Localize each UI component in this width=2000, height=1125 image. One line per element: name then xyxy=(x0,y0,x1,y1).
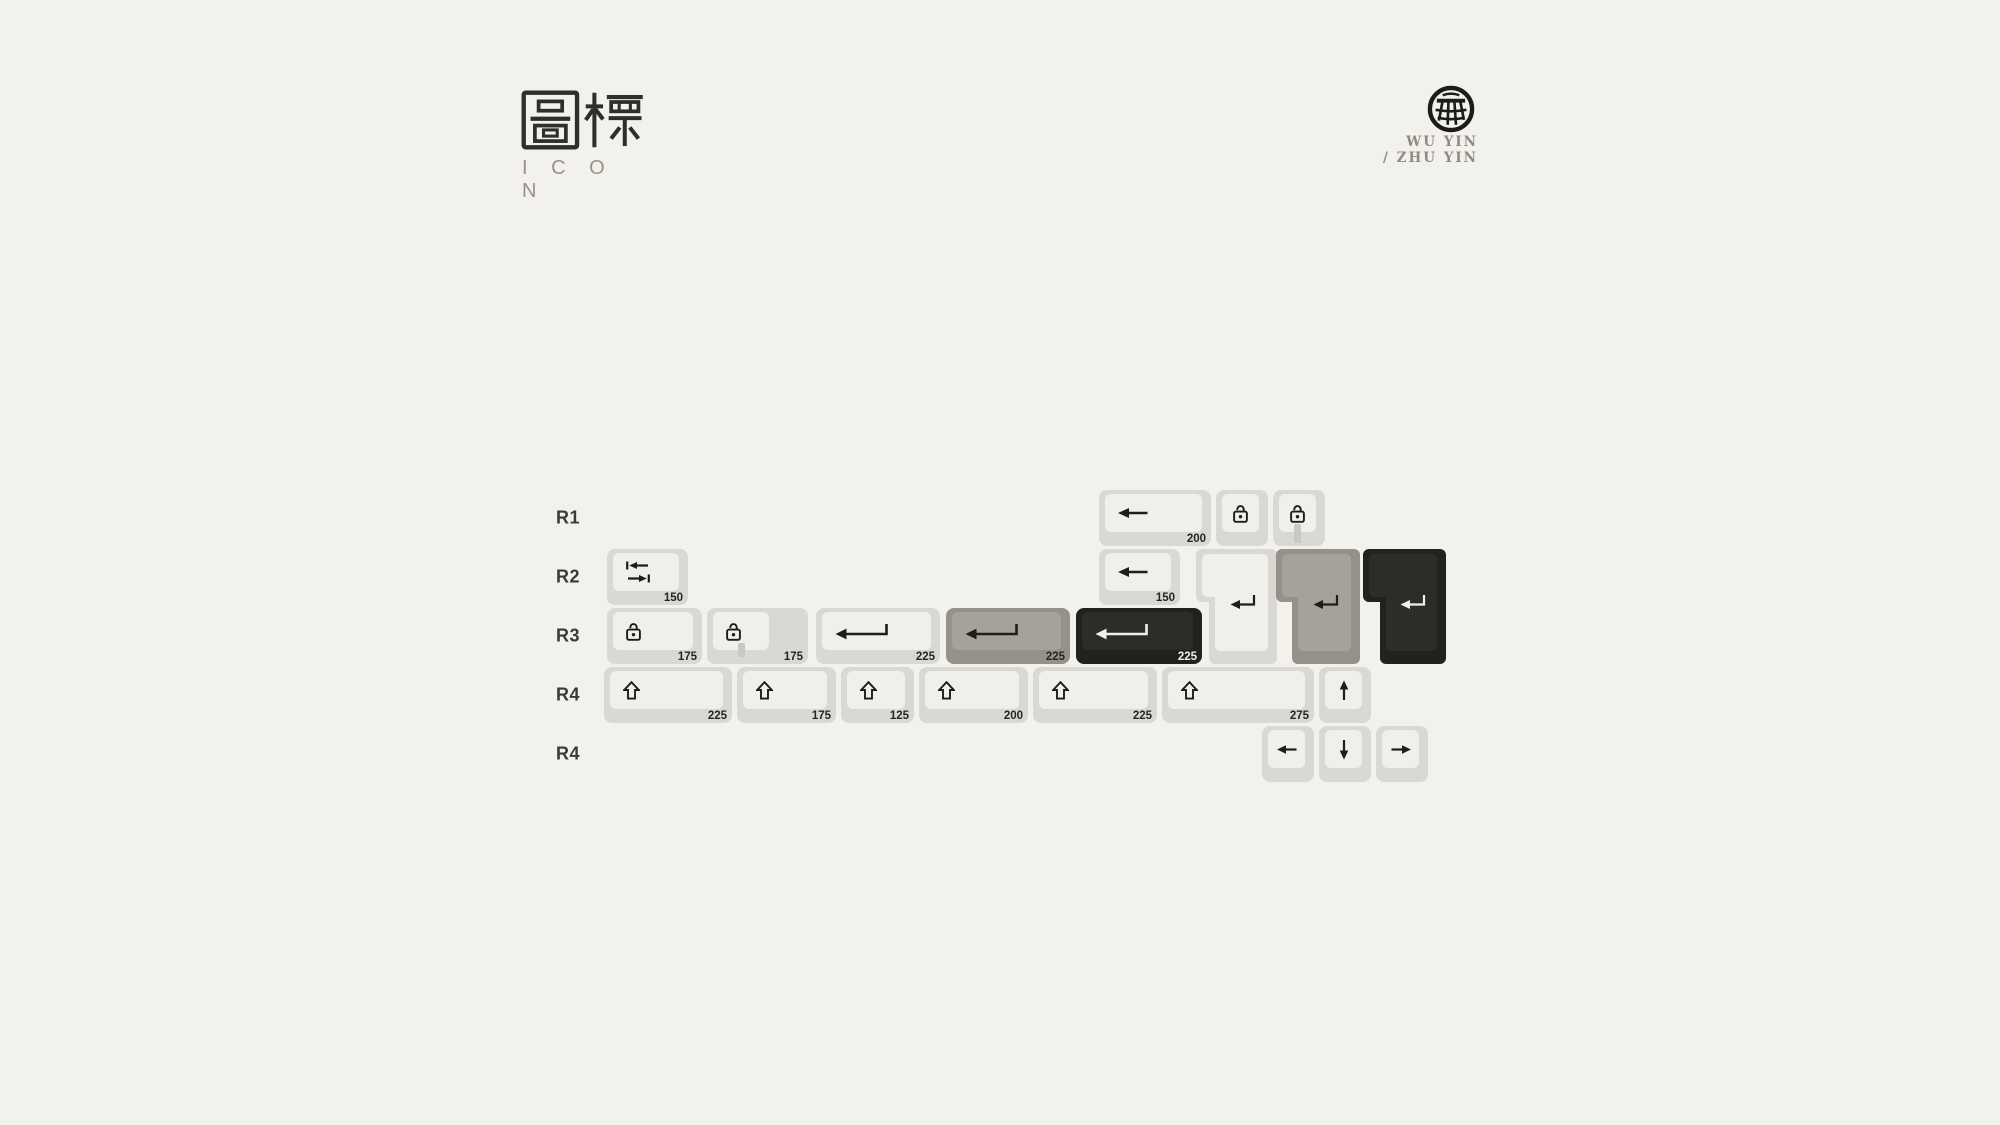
arrow-down-icon xyxy=(1338,739,1349,759)
keycap-size-label: 200 xyxy=(1187,533,1206,545)
keycap-size-label: 150 xyxy=(664,592,683,604)
return-long-icon xyxy=(965,621,1019,641)
keycap-size-label: 225 xyxy=(916,651,935,663)
keycap-top-surface xyxy=(613,612,693,650)
arrow-left-icon xyxy=(1118,507,1148,519)
return-long-icon xyxy=(1095,621,1149,641)
lock-icon xyxy=(726,621,741,641)
keycap-shift-225: 225 xyxy=(604,667,732,723)
keycap-shift-125: 125 xyxy=(841,667,914,723)
keycap-enter-225-white: 225 xyxy=(816,608,940,664)
tab-icon xyxy=(626,561,650,583)
keycap-size-label: 275 xyxy=(1290,710,1309,722)
keycap-backspace-200: 200 xyxy=(1099,490,1211,546)
keycap-size-label: 175 xyxy=(812,710,831,722)
keycap-size-label: 225 xyxy=(1178,651,1197,663)
row-label-r4-4: R4 xyxy=(556,744,580,765)
keycap-size-label: 150 xyxy=(1156,592,1175,604)
row-label-r1-0: R1 xyxy=(556,508,580,529)
arrow-left-icon xyxy=(1118,566,1148,578)
lock-icon xyxy=(1290,503,1305,523)
keycap-shift-275: 275 xyxy=(1162,667,1314,723)
shift-icon xyxy=(938,681,955,700)
keycap-shift-200: 200 xyxy=(919,667,1028,723)
arrow-right-icon xyxy=(1391,744,1411,755)
row-label-r2-1: R2 xyxy=(556,567,580,588)
arrow-up-icon xyxy=(1338,680,1349,700)
keycap-backspace-150: 150 xyxy=(1099,549,1180,605)
return-long-icon xyxy=(835,621,889,641)
keycap-enter-225-black: 225 xyxy=(1076,608,1202,664)
keycap-set-poster: 圖標 I C O N WU YIN / ZHU YIN R1R2R3R4R420… xyxy=(0,0,2000,1125)
return-icon xyxy=(1400,593,1426,611)
keycap-size-label: 200 xyxy=(1004,710,1023,722)
keycap-arrow-right xyxy=(1376,726,1428,782)
row-label-r3-2: R3 xyxy=(556,626,580,647)
keycap-arrow-left xyxy=(1262,726,1314,782)
keycap-layout: R1R2R3R4R4200 150150 175 175225225225225… xyxy=(0,0,2000,1125)
keycap-shift-225-b: 225 xyxy=(1033,667,1157,723)
keycap-enter-225-gray: 225 xyxy=(946,608,1070,664)
keycap-lock-175: 175 xyxy=(607,608,702,664)
lock-icon xyxy=(1233,503,1248,523)
keycap-size-label: 175 xyxy=(678,651,697,663)
lock-icon xyxy=(626,621,641,641)
caps-led-window xyxy=(1294,524,1301,543)
arrow-left-sm-icon xyxy=(1277,744,1297,755)
keycap-stepped-capslock-175: 175 xyxy=(707,608,808,664)
keycap-size-label: 225 xyxy=(1046,651,1065,663)
return-icon xyxy=(1313,593,1339,611)
shift-icon xyxy=(756,681,773,700)
keycap-lock-100 xyxy=(1216,490,1268,546)
keycap-size-label: 175 xyxy=(784,651,803,663)
keycap-iso-enter-gray xyxy=(1276,549,1360,664)
keycap-size-label: 225 xyxy=(1133,710,1152,722)
return-icon xyxy=(1230,593,1256,611)
keycap-iso-enter-black xyxy=(1363,549,1446,664)
keycap-iso-enter-white xyxy=(1196,549,1277,664)
keycap-arrow-down xyxy=(1319,726,1371,782)
keycap-tab-150: 150 xyxy=(607,549,688,605)
keycap-lock-led-100 xyxy=(1273,490,1325,546)
row-label-r4-3: R4 xyxy=(556,685,580,706)
keycap-size-label: 225 xyxy=(708,710,727,722)
keycap-shift-175: 175 xyxy=(737,667,836,723)
keycap-arrow-up xyxy=(1319,667,1371,723)
shift-icon xyxy=(1181,681,1198,700)
caps-led-window xyxy=(738,643,745,657)
keycap-size-label: 125 xyxy=(890,710,909,722)
shift-icon xyxy=(860,681,877,700)
shift-icon xyxy=(623,681,640,700)
shift-icon xyxy=(1052,681,1069,700)
